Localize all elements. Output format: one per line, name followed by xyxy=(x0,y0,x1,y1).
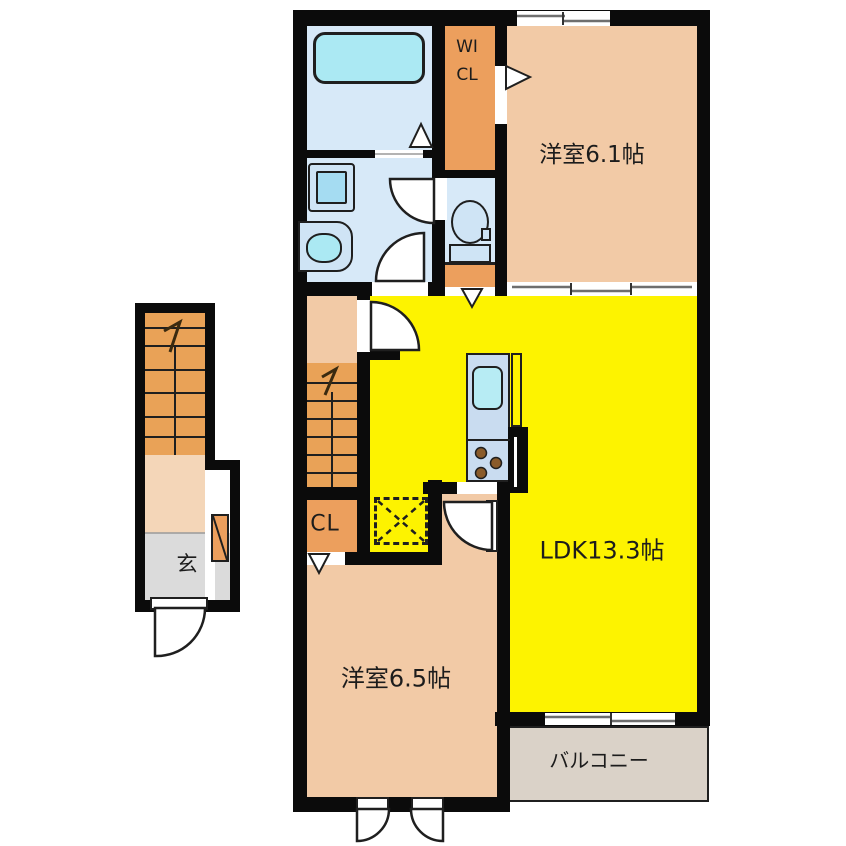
ceiling-hatch xyxy=(374,497,428,545)
toilet-tank xyxy=(449,244,491,263)
wall-stub-hall xyxy=(367,348,400,360)
ewall-right xyxy=(205,303,215,470)
door-leaf-bedroom2-left xyxy=(356,797,389,812)
label-wicl: WICL xyxy=(456,34,478,89)
door-leaf-nook xyxy=(486,500,498,552)
wall-toilet-top xyxy=(445,170,495,178)
opening-washroom-door xyxy=(372,282,428,296)
stairs-entrance xyxy=(145,313,205,455)
wall-wicl-right xyxy=(495,10,507,296)
opening-under-toilet xyxy=(445,287,495,296)
label-ldk: LDK13.3帖 xyxy=(539,531,664,566)
vanity-bowl xyxy=(306,233,342,263)
toilet-paper-holder xyxy=(481,228,491,241)
wall-bottom-bedroom2 xyxy=(293,797,510,812)
wall-bedroom2-right xyxy=(497,482,510,797)
door-arc-entrance xyxy=(155,608,205,656)
opening-closet xyxy=(307,552,345,565)
door-arc-bedroom2-right xyxy=(411,809,443,841)
bathtub xyxy=(313,32,425,84)
ewall-top xyxy=(135,303,215,313)
floor-plan: 洋室6.1帖 LDK13.3帖 洋室6.5帖 バルコニー CL 玄 WICL xyxy=(0,0,846,846)
room-ldk-lower xyxy=(510,482,697,712)
wall-left xyxy=(293,10,307,812)
opening-toilet-door xyxy=(430,178,447,220)
wall-bath-wash-b xyxy=(423,150,445,158)
wall-kitchen-bottom xyxy=(423,482,457,494)
label-bedroom1: 洋室6.1帖 xyxy=(539,135,645,169)
entrance-landing xyxy=(145,455,205,533)
label-bedroom2: 洋室6.5帖 xyxy=(341,659,451,694)
window-balcony xyxy=(545,713,675,725)
label-genkan: 玄 xyxy=(177,548,198,578)
washer-inner xyxy=(316,171,347,204)
door-leaf-entrance xyxy=(150,597,208,610)
ewall-left xyxy=(135,303,145,612)
door-leaf-bedroom2-right xyxy=(411,797,444,812)
wall-right xyxy=(697,10,710,726)
label-closet: CL xyxy=(310,512,340,537)
room-ldk-upper xyxy=(370,296,697,482)
wall-bath-wash-a xyxy=(293,150,375,158)
window-bedroom1-top xyxy=(517,11,610,26)
kitchen-sink xyxy=(472,366,503,410)
sliding-door-bedroom1 xyxy=(512,283,692,295)
ewall-bump-right xyxy=(230,460,240,612)
stairs-main xyxy=(307,363,357,487)
opening-nook-door xyxy=(457,482,497,494)
label-balcony: バルコニー xyxy=(549,745,649,774)
hall-upper xyxy=(307,296,357,363)
shoe-cabinet xyxy=(211,514,229,562)
opening-hall-door xyxy=(357,300,370,352)
door-arc-bedroom2-left xyxy=(357,809,389,841)
opening-wicl xyxy=(495,66,507,124)
wicl-lower-strip xyxy=(445,263,495,289)
kitchen-wall-slit xyxy=(514,437,517,487)
kitchen-wall-block xyxy=(508,427,528,493)
kitchen-counter-edge xyxy=(511,353,522,427)
opening-bath-door xyxy=(375,150,423,158)
